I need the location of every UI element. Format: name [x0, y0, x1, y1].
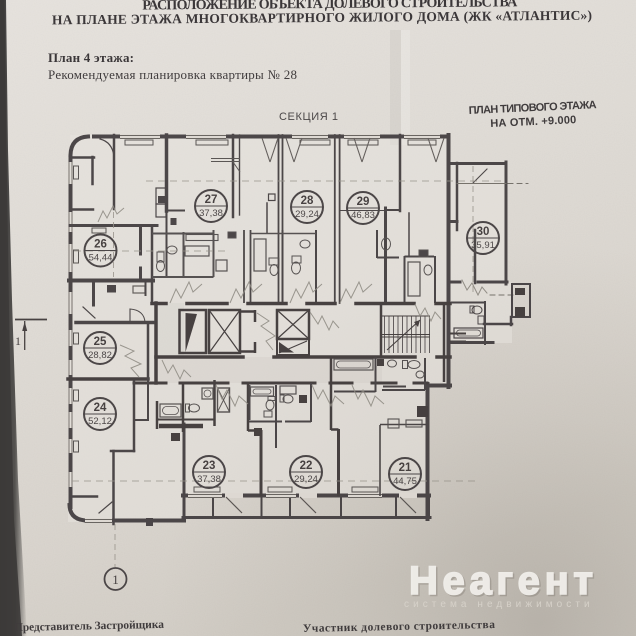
svg-text:22: 22	[300, 460, 313, 472]
svg-text:26: 26	[94, 239, 107, 251]
svg-text:21: 21	[399, 462, 412, 474]
svg-text:37,38: 37,38	[197, 474, 221, 485]
svg-text:35,91: 35,91	[471, 240, 495, 251]
svg-text:29,24: 29,24	[295, 209, 319, 220]
svg-text:23: 23	[203, 460, 216, 472]
svg-text:30: 30	[477, 226, 490, 238]
svg-text:52,12: 52,12	[88, 416, 112, 427]
svg-text:37,38: 37,38	[199, 208, 223, 219]
svg-text:СЕКЦИЯ 1: СЕКЦИЯ 1	[279, 111, 339, 123]
svg-text:46,83: 46,83	[351, 210, 375, 221]
svg-text:Неагент: Неагент	[409, 559, 593, 603]
svg-text:29,24: 29,24	[294, 474, 318, 485]
svg-text:1: 1	[112, 572, 119, 587]
svg-text:29: 29	[357, 196, 370, 208]
svg-text:44,75: 44,75	[393, 476, 417, 487]
svg-text:28,82: 28,82	[88, 350, 112, 361]
svg-text:1: 1	[15, 334, 21, 348]
svg-text:25: 25	[94, 336, 107, 348]
svg-text:28: 28	[301, 195, 314, 207]
svg-text:24: 24	[94, 402, 107, 414]
svg-text:План 4 этажа:: План 4 этажа:	[48, 50, 134, 65]
svg-text:27: 27	[205, 194, 218, 206]
svg-text:Рекомендуемая планировка кварт: Рекомендуемая планировка квартиры № 28	[48, 67, 297, 82]
svg-text:54,44: 54,44	[89, 253, 113, 264]
svg-text:система недвижимости: система недвижимости	[404, 599, 592, 610]
